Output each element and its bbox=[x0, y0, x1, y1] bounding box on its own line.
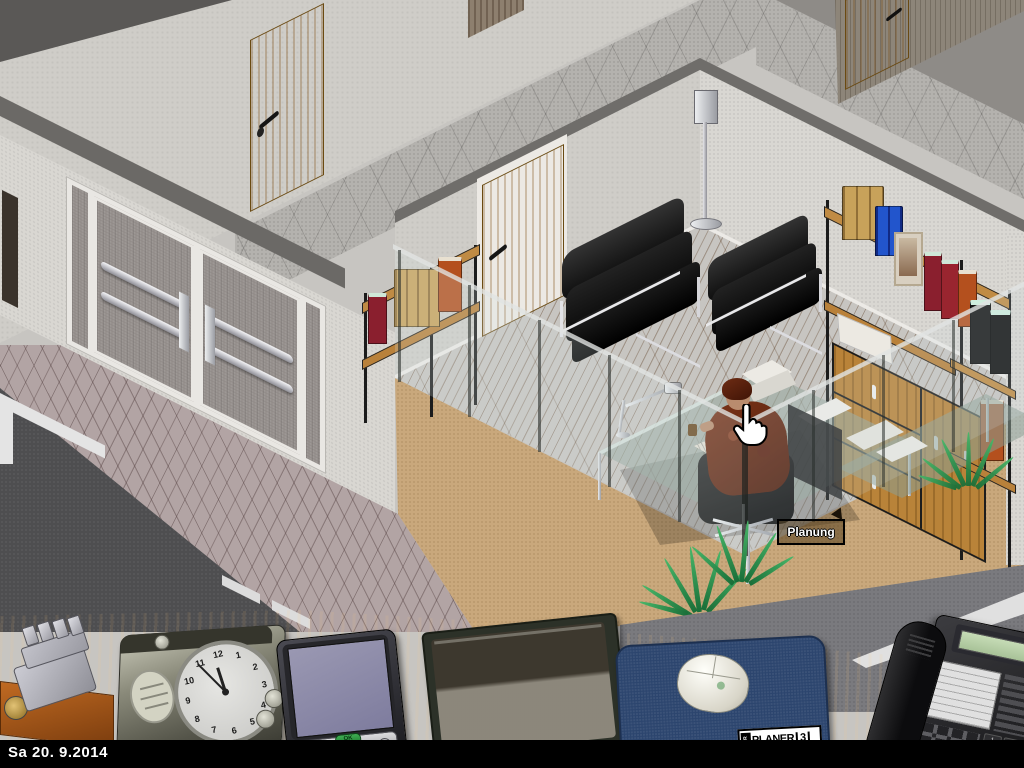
date-label: Sa 20. 9.2014 bbox=[8, 744, 108, 761]
hand-cursor-icon bbox=[730, 404, 768, 448]
plant-right[interactable] bbox=[928, 412, 1024, 532]
plate-text-line bbox=[140, 692, 168, 701]
tooltip: Planung bbox=[777, 519, 845, 545]
photo bbox=[899, 238, 917, 276]
mouse[interactable] bbox=[673, 649, 755, 720]
glass-post bbox=[608, 355, 611, 487]
glass-post bbox=[882, 355, 885, 487]
pda-screen bbox=[287, 638, 394, 738]
door-handle-icon bbox=[489, 244, 508, 262]
game-screen: 121234567891011 OK bbox=[0, 0, 1024, 768]
mouse-body bbox=[673, 649, 753, 718]
plate-text-line bbox=[145, 702, 169, 710]
entrance-sidelight bbox=[306, 302, 320, 465]
glass-post bbox=[538, 320, 541, 452]
glass-post bbox=[812, 390, 815, 522]
armchair-right[interactable] bbox=[700, 218, 830, 348]
entrance-sidelight bbox=[72, 185, 88, 349]
handset-grooves bbox=[905, 634, 936, 660]
plate-text-line bbox=[140, 682, 164, 690]
binder-red bbox=[941, 260, 959, 319]
glass-post bbox=[468, 285, 471, 417]
door-mount bbox=[205, 305, 215, 366]
picture-frame bbox=[894, 232, 923, 286]
lamp-shade bbox=[694, 90, 718, 124]
door-handle-icon bbox=[886, 7, 902, 22]
chrome-frame bbox=[636, 333, 700, 368]
employee-hair bbox=[722, 378, 752, 400]
binder-red bbox=[924, 252, 942, 311]
door-left-sliver bbox=[2, 190, 18, 308]
binder-red bbox=[368, 293, 387, 344]
tooltip-text: Planung bbox=[779, 521, 843, 543]
glass-post bbox=[398, 250, 401, 382]
status-bar: Sa 20. 9.2014 bbox=[0, 740, 1024, 768]
engine-model-button[interactable] bbox=[0, 622, 118, 742]
door-handle-icon bbox=[257, 126, 264, 139]
door-mount bbox=[179, 292, 189, 353]
leaf bbox=[966, 432, 971, 486]
road-marking bbox=[0, 400, 13, 464]
